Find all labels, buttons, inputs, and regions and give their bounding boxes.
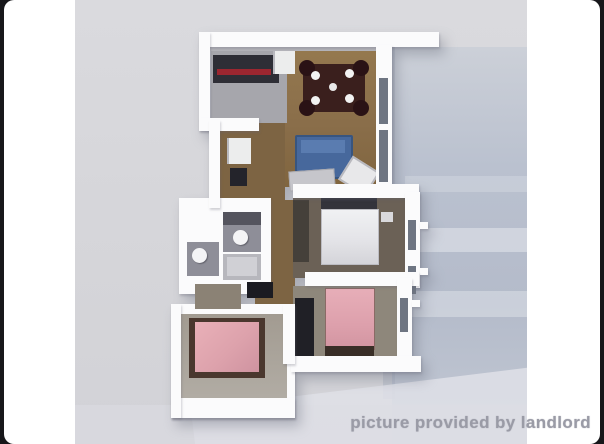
photo-card: picture provided by landlord [4, 0, 600, 444]
window-sill [420, 222, 428, 229]
wall-bedroom3-right [397, 278, 412, 366]
white-bed [321, 209, 379, 265]
bathtub-inner [227, 257, 257, 276]
toilet-icon [233, 230, 248, 245]
wall-window-living [376, 45, 392, 195]
dining-chair [353, 100, 369, 116]
wall-kitchen-left [199, 32, 210, 130]
closet [195, 284, 241, 309]
kitchen-counter-accent [217, 69, 271, 75]
plate [329, 83, 337, 91]
wall-living-bedroom1 [293, 184, 419, 198]
plate [345, 94, 354, 103]
pink-bed-horizontal [195, 322, 259, 372]
white-bed-headboard [321, 198, 377, 209]
bedroom3-wardrobe [295, 298, 314, 358]
plate [345, 69, 354, 78]
sink-icon [192, 248, 207, 263]
floorplan-photo [75, 0, 527, 444]
window-sill [420, 268, 428, 275]
nightstand [381, 212, 393, 222]
window-pane [400, 298, 408, 332]
wall-bedroom2-left [171, 304, 181, 418]
shower [223, 212, 261, 225]
dining-table [303, 64, 365, 112]
wall-kitchen-bottom [199, 118, 259, 131]
bedroom1-wardrobe [293, 200, 309, 262]
wall-bedroom3-bottom [291, 356, 421, 372]
window-pane [408, 220, 416, 250]
window-sill [412, 300, 420, 307]
wall-bedroom2-right [283, 304, 295, 364]
plate [311, 96, 320, 105]
sofa-cushion [301, 140, 345, 153]
plate [311, 71, 320, 80]
wall-top [199, 32, 439, 47]
hall-desk [247, 282, 273, 298]
watermark-text: picture provided by landlord [350, 413, 591, 433]
floorplan-3d-render [75, 0, 527, 444]
wall-bedroom2-bottom [171, 398, 295, 418]
window-pane [379, 78, 388, 124]
hall-dark-cabinet [230, 168, 247, 186]
dining-chair [353, 60, 369, 76]
pink-bed-vertical [325, 288, 375, 350]
bathtub [223, 254, 261, 280]
wall-hall-left [209, 120, 220, 208]
hall-cabinet [227, 138, 251, 164]
wall-shadow [199, 47, 392, 51]
window-pane [379, 130, 388, 182]
